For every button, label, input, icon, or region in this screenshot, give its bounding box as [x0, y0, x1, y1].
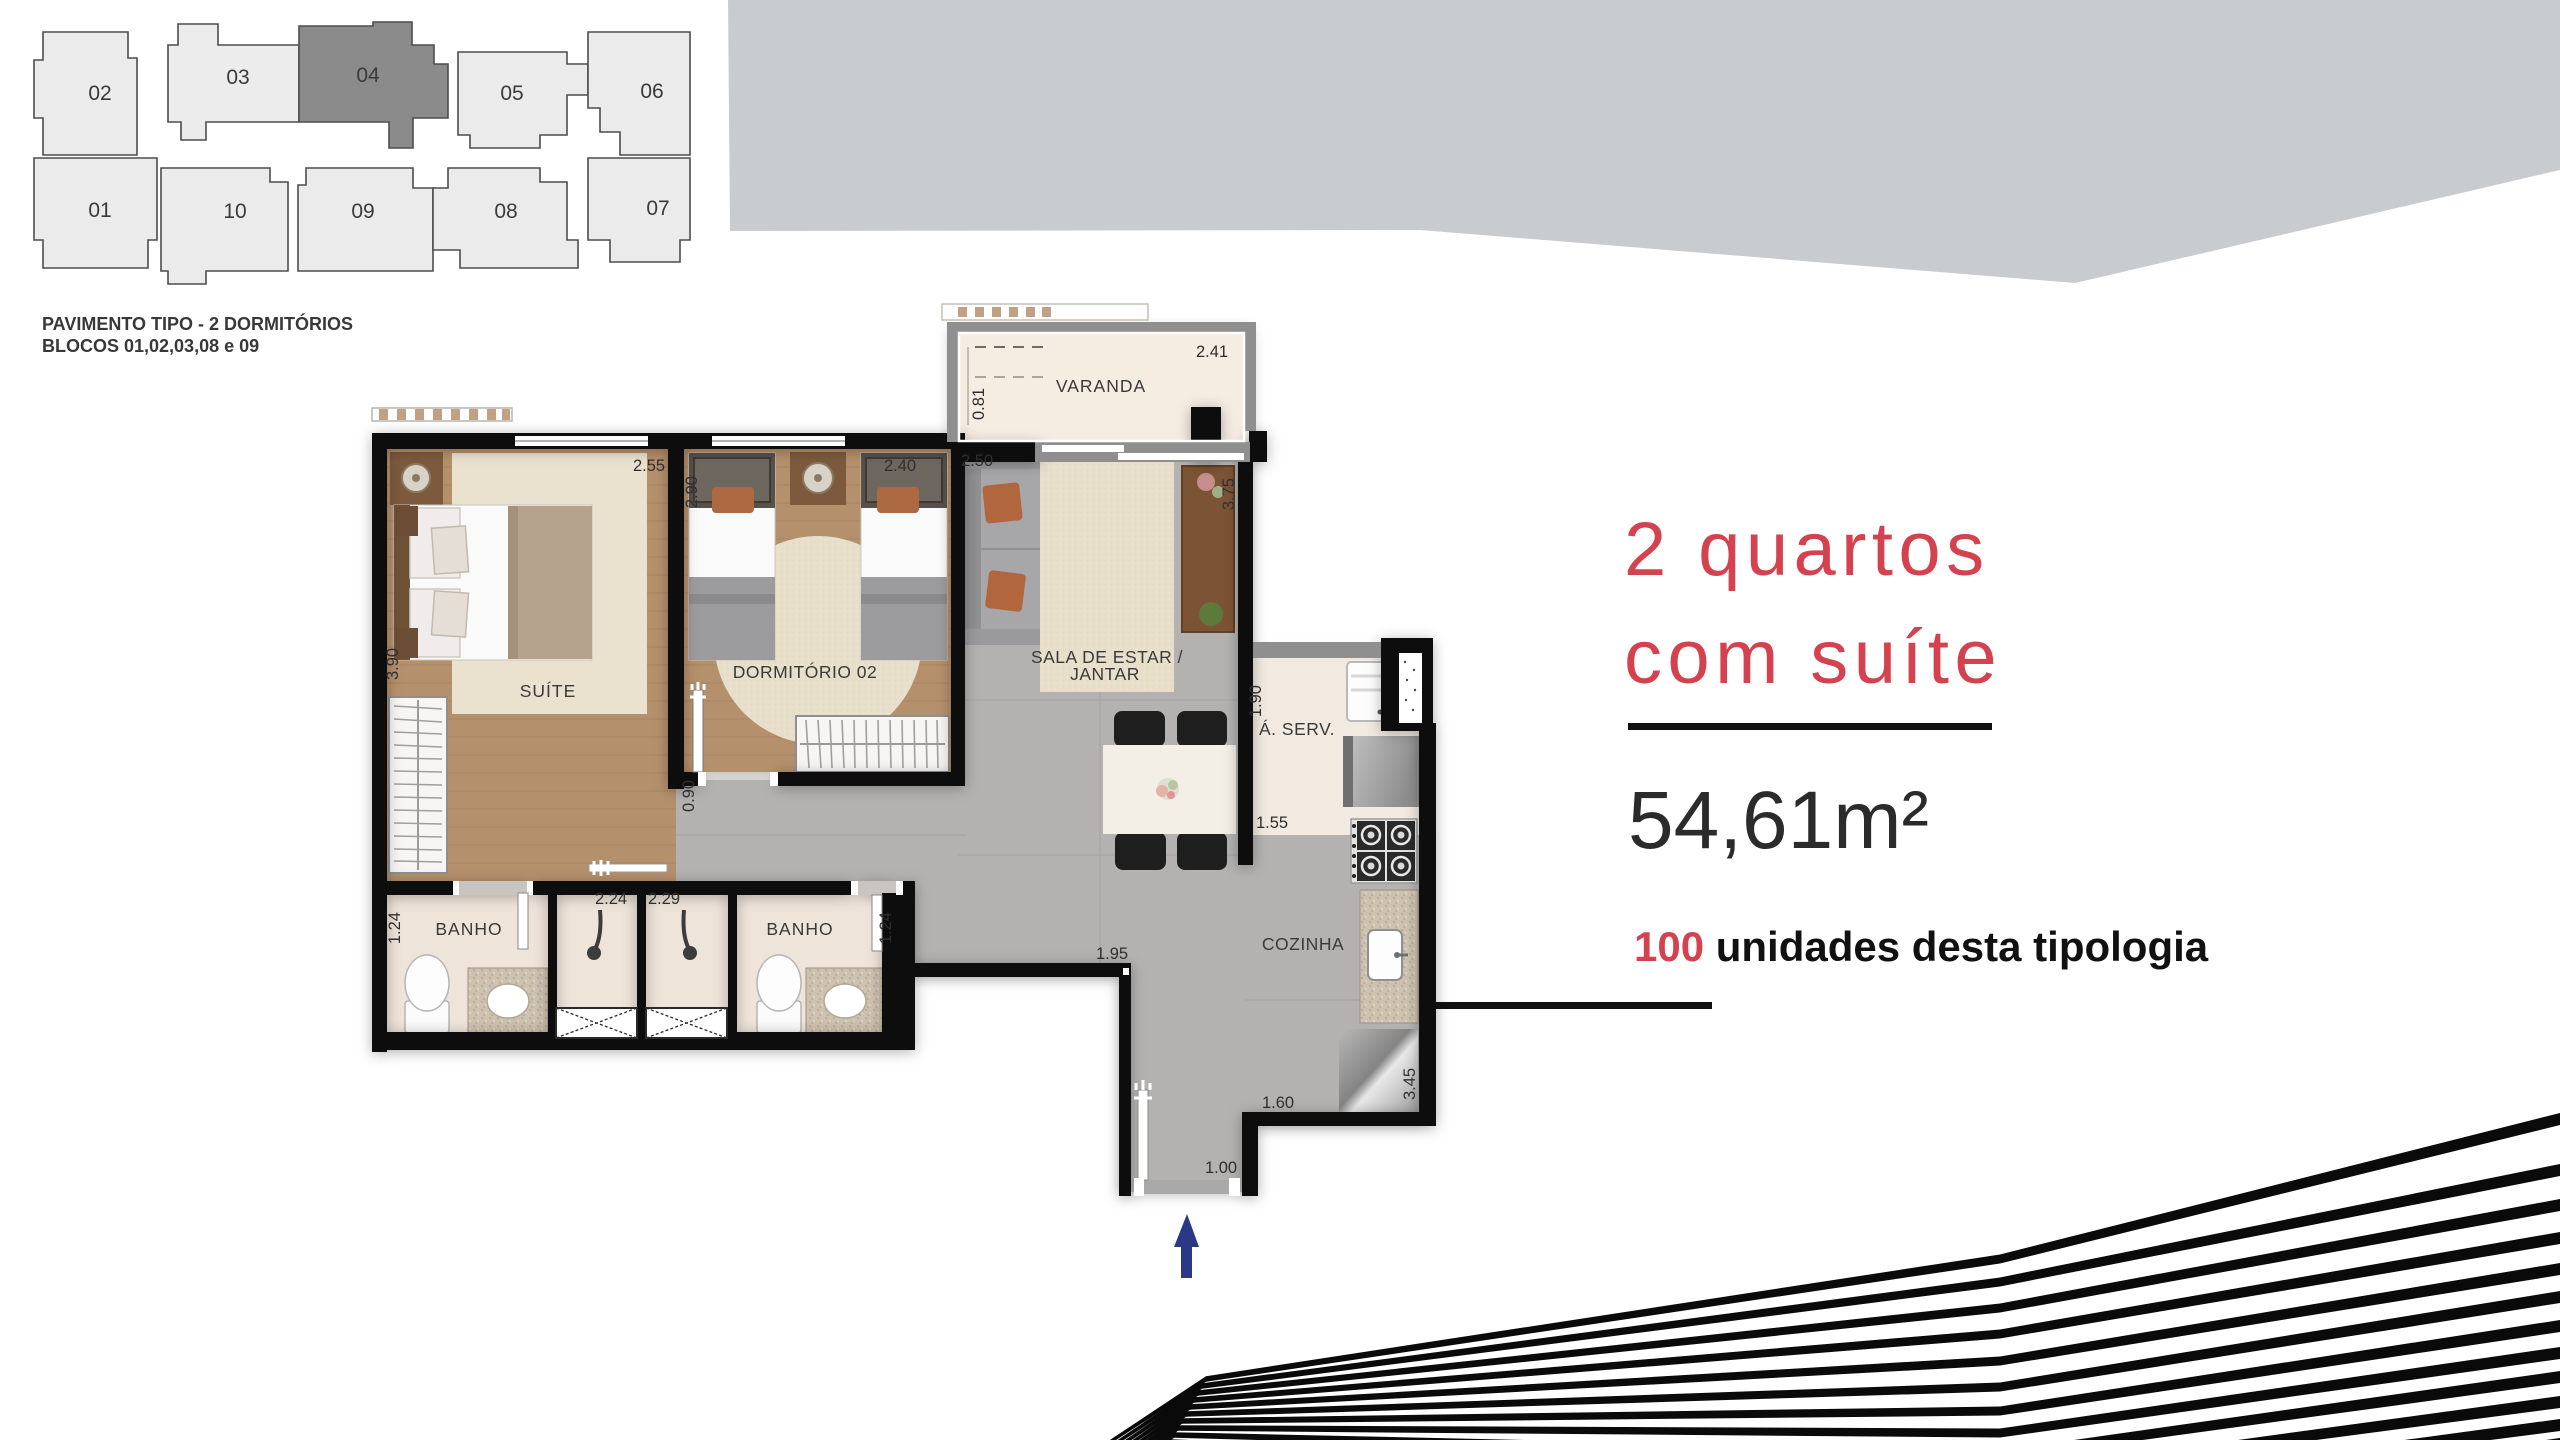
svg-text:01: 01 [88, 199, 111, 222]
svg-text:09: 09 [351, 200, 374, 223]
svg-text:1.24: 1.24 [386, 912, 404, 944]
svg-text:2.41: 2.41 [1196, 343, 1228, 361]
svg-text:COZINHA: COZINHA [1262, 934, 1344, 954]
svg-text:2 quartos: 2 quartos [1624, 507, 1989, 592]
svg-text:2.50: 2.50 [961, 452, 993, 470]
svg-text:03: 03 [226, 66, 249, 89]
svg-text:VARANDA: VARANDA [1056, 376, 1146, 396]
svg-text:3.75: 3.75 [1220, 478, 1238, 510]
svg-text:BANHO: BANHO [435, 919, 502, 939]
svg-text:05: 05 [500, 82, 523, 105]
svg-text:Á. SERV.: Á. SERV. [1259, 719, 1335, 739]
svg-text:02: 02 [88, 82, 111, 105]
svg-text:07: 07 [646, 197, 669, 220]
svg-text:100 unidades desta tipologia: 100 unidades desta tipologia [1634, 923, 2209, 970]
svg-text:2.29: 2.29 [648, 890, 680, 908]
svg-text:1.55: 1.55 [1256, 814, 1288, 832]
svg-text:10: 10 [223, 200, 246, 223]
svg-text:SUÍTE: SUÍTE [520, 681, 577, 701]
svg-text:3.45: 3.45 [1401, 1068, 1419, 1100]
svg-text:2.90: 2.90 [683, 476, 701, 508]
svg-text:0.81: 0.81 [970, 388, 988, 420]
svg-text:0.90: 0.90 [680, 780, 698, 812]
svg-text:3.90: 3.90 [384, 648, 402, 680]
svg-text:1.60: 1.60 [1262, 1094, 1294, 1112]
svg-text:JANTAR: JANTAR [1070, 664, 1140, 684]
svg-text:2.24: 2.24 [595, 890, 627, 908]
svg-text:1.90: 1.90 [1247, 685, 1265, 717]
svg-text:08: 08 [494, 200, 517, 223]
svg-text:06: 06 [640, 80, 663, 103]
svg-text:DORMITÓRIO 02: DORMITÓRIO 02 [733, 661, 878, 682]
svg-text:1.24: 1.24 [877, 912, 895, 944]
svg-text:04: 04 [356, 64, 380, 87]
svg-text:54,61m²: 54,61m² [1628, 775, 1929, 866]
svg-text:BLOCOS 01,02,03,08 e 09: BLOCOS 01,02,03,08 e 09 [42, 336, 259, 356]
svg-text:2.55: 2.55 [633, 457, 665, 475]
svg-text:1.00: 1.00 [1205, 1159, 1237, 1177]
svg-text:2.40: 2.40 [884, 457, 916, 475]
svg-text:PAVIMENTO TIPO - 2 DORMITÓRIOS: PAVIMENTO TIPO - 2 DORMITÓRIOS [42, 313, 353, 334]
svg-text:com suíte: com suíte [1624, 615, 2002, 700]
svg-text:BANHO: BANHO [766, 919, 833, 939]
svg-text:1.95: 1.95 [1096, 945, 1128, 963]
